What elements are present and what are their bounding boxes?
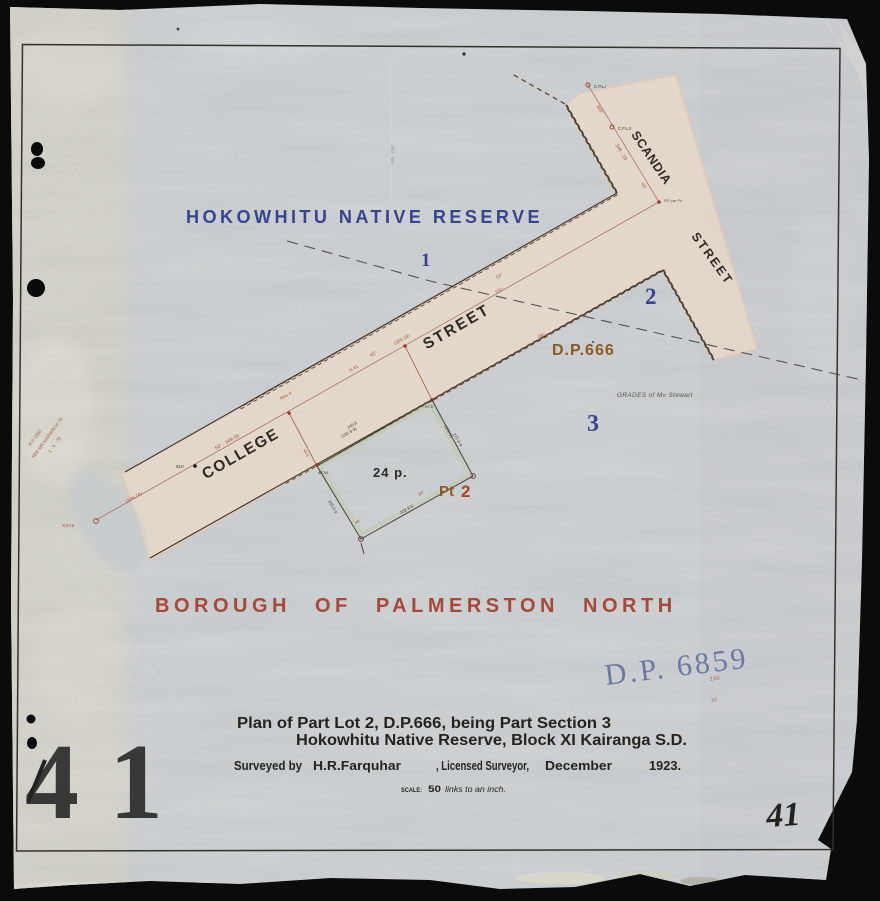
svg-text:2: 2	[645, 284, 657, 309]
svg-text:2: 2	[461, 482, 470, 501]
svg-text:1: 1	[421, 250, 431, 271]
svg-text:41: 41	[25, 723, 193, 842]
svg-text:910: 910	[176, 464, 184, 469]
svg-text:Pt: Pt	[439, 483, 454, 500]
svg-text:91°6': 91°6'	[425, 405, 434, 409]
svg-text:XXVII: XXVII	[62, 523, 74, 529]
svg-text:RP par Pk: RP par Pk	[664, 198, 682, 203]
svg-text:Plan of Part Lot 2, D.P.666, b: Plan of Part Lot 2, D.P.666, being Part …	[237, 715, 611, 732]
svg-text:HOKOWHITU NATIVE RESERVE: HOKOWHITU NATIVE RESERVE	[186, 207, 543, 227]
svg-text:C.P.L.I: C.P.L.I	[594, 84, 606, 89]
svg-text:D.P.666: D.P.666	[552, 342, 615, 359]
svg-text:24 p.: 24 p.	[373, 465, 408, 480]
svg-text:BOROUGH OF PALMERSTON NORTH: BOROUGH OF PALMERSTON NORTH	[155, 595, 677, 617]
svg-text:Hokowhitu Native Reserve, Bloc: Hokowhitu Native Reserve, Block XI Kaira…	[296, 732, 687, 749]
svg-text:C.P.L.II: C.P.L.II	[618, 126, 631, 131]
svg-text:200 · 683: 200 · 683	[390, 145, 395, 165]
svg-text:3: 3	[587, 411, 599, 437]
svg-text:41: 41	[764, 796, 801, 835]
svg-text:88°54': 88°54'	[318, 471, 329, 475]
svg-text:GRADES of MR Stewart: GRADES of MR Stewart	[617, 392, 693, 399]
